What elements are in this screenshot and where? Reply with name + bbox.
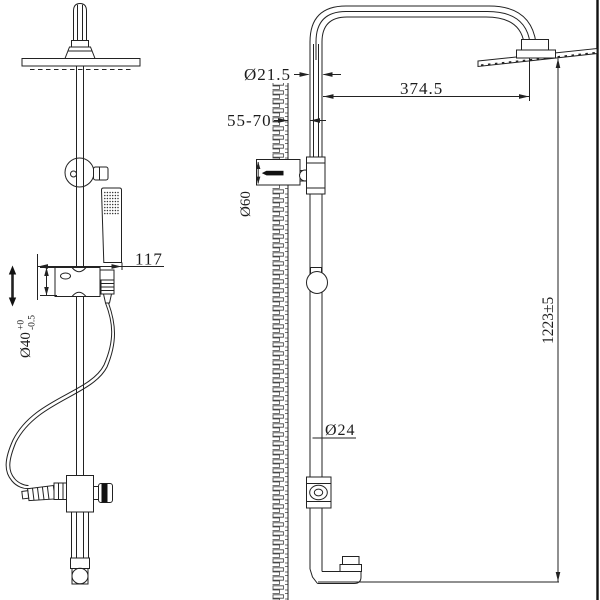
arrow-up-icon: [9, 266, 16, 275]
drawing-canvas: Ø21.5 374.5 55-70 Ø60: [0, 0, 600, 600]
slide-rail-slider: [55, 268, 114, 304]
arrow-left-icon: [310, 118, 320, 123]
outlet-cap: [343, 557, 360, 565]
dim-total-height: 1223±5: [318, 59, 560, 583]
arrow-right-icon: [519, 94, 529, 99]
slider-travel-arrow: [9, 266, 16, 307]
overhead-head-front: [22, 47, 140, 70]
bracket-handle: [94, 167, 109, 180]
dim-label-hand-offset: 117: [135, 250, 163, 269]
dim-pipe-diameter: Ø24: [313, 422, 357, 439]
dim-label-reach: 374.5: [400, 79, 443, 98]
diverter-valve-side: [307, 477, 332, 508]
arrow-down-icon: [44, 287, 49, 296]
wall-bracket-side: [257, 160, 311, 186]
arrow-left-icon: [323, 72, 333, 77]
pipe-slider-block: [307, 157, 326, 194]
dim-label-height: 1223±5: [540, 296, 557, 344]
hand-shower-holder: [100, 270, 114, 280]
diverter-tee-front: [22, 476, 113, 559]
inlet-hex-nut: [54, 483, 67, 500]
wall-bracket-front: [65, 158, 94, 187]
hose-nipple: [104, 294, 112, 303]
arm-pipe-front: [72, 4, 89, 48]
outlet-elbow: [310, 508, 362, 584]
shower-technical-drawing: Ø21.5 374.5 55-70 Ø60: [0, 0, 600, 600]
arrow-left-icon: [324, 94, 334, 99]
arrow-up-icon: [44, 268, 49, 277]
dim-label-slider-tol-top: +0: [17, 320, 27, 330]
front-view: [6, 4, 140, 585]
arrow-down-icon: [556, 572, 561, 582]
arrow-down-icon: [9, 298, 16, 307]
dim-label-head-pipe: Ø21.5: [244, 65, 291, 84]
dim-label-pipe: Ø24: [325, 422, 356, 439]
dim-label-slider: Ø40: [18, 332, 34, 358]
head-connector-flange: [517, 50, 556, 58]
diverter-knob: [99, 484, 113, 503]
dim-head-pipe-diameter: Ø21.5: [244, 65, 341, 84]
arrow-right-icon: [300, 72, 310, 77]
shower-arm: [310, 6, 536, 60]
outlet-flange: [340, 565, 362, 572]
dim-label-slider-tol-bottom: -0.5: [28, 315, 38, 330]
bottom-fitting: [71, 558, 90, 584]
dim-label-wall-distance: 55-70: [227, 111, 272, 130]
head-connector: [522, 40, 549, 51]
dim-label-bracket: Ø60: [238, 191, 254, 217]
arrow-right-icon: [112, 264, 122, 269]
hand-shower: [102, 188, 122, 263]
riser-pipe: [310, 44, 322, 477]
overhead-shower-head: [478, 40, 597, 67]
arrow-up-icon: [556, 59, 561, 69]
dim-slider-diameter: Ø40 +0 -0.5: [17, 268, 58, 359]
